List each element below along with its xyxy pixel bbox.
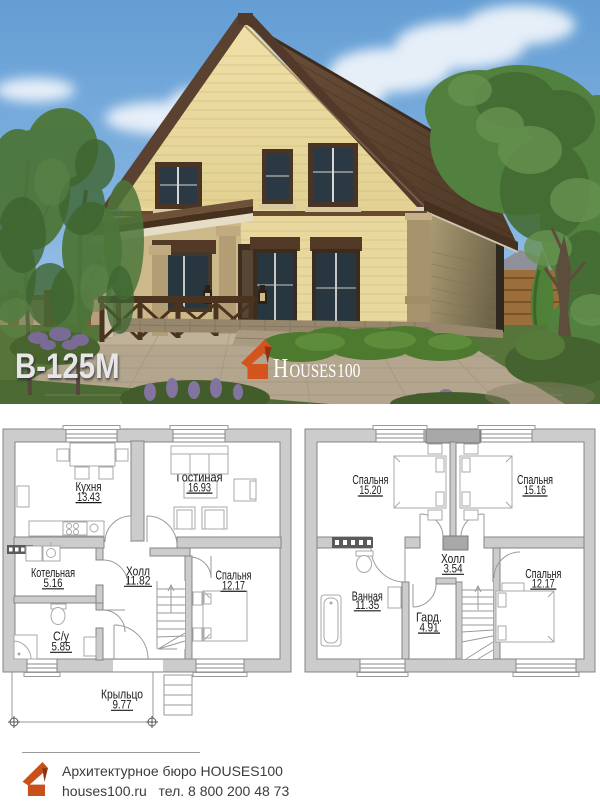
- svg-text:12.17: 12.17: [532, 576, 555, 590]
- svg-text:9.77: 9.77: [113, 698, 132, 712]
- svg-text:3.54: 3.54: [444, 562, 463, 576]
- svg-text:11.82: 11.82: [126, 574, 151, 588]
- svg-text:11.35: 11.35: [355, 598, 379, 612]
- svg-text:16.93: 16.93: [188, 480, 211, 494]
- svg-text:5.16: 5.16: [44, 576, 63, 590]
- svg-text:15.20: 15.20: [359, 483, 381, 497]
- svg-text:12.17: 12.17: [222, 579, 245, 593]
- svg-text:4.91: 4.91: [420, 620, 439, 634]
- svg-text:15.16: 15.16: [524, 483, 546, 497]
- svg-text:5.85: 5.85: [52, 640, 71, 654]
- svg-text:13.43: 13.43: [77, 490, 100, 504]
